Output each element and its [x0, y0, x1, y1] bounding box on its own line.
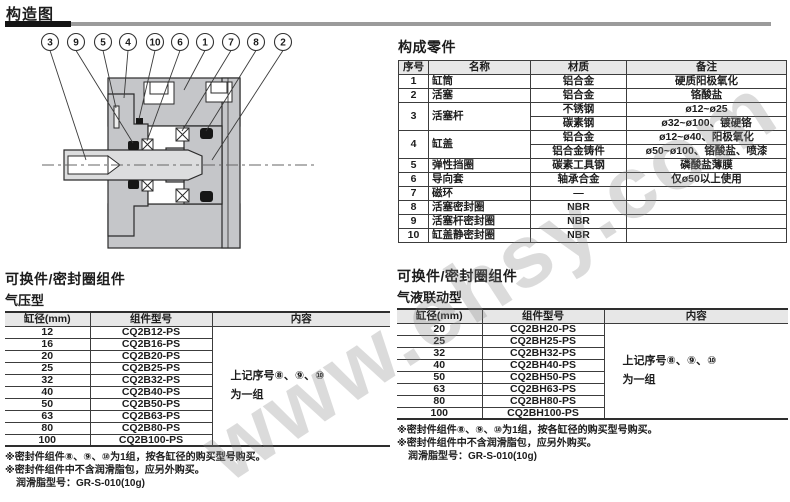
- part-material: NBR: [531, 215, 627, 229]
- kit-part-number: CQ2BH63-PS: [482, 383, 604, 395]
- svg-text:1: 1: [202, 38, 208, 49]
- part-note: [627, 201, 787, 215]
- table-row: 1缸筒铝合金硬质阳极氧化: [399, 75, 787, 89]
- cylinder-cross-section: 39541061782: [16, 28, 380, 266]
- part-no: 6: [399, 173, 429, 187]
- kit-part-number: CQ2B63-PS: [90, 410, 212, 422]
- kit-part-number: CQ2BH20-PS: [482, 323, 604, 335]
- part-no: 4: [399, 131, 429, 159]
- part-name: 磁环: [429, 187, 531, 201]
- kit-subtitle: 气压型: [5, 290, 390, 309]
- kit-note-line: ※密封件组件⑧、⑨、⑩为1组，按各缸径的购买型号购买。: [397, 424, 788, 437]
- bore-size: 100: [397, 407, 482, 419]
- parts-title: 构成零件: [398, 37, 787, 57]
- kit-subtitle: 气液联动型: [397, 287, 788, 306]
- part-material: 铝合金: [531, 75, 627, 89]
- part-no: 3: [399, 103, 429, 131]
- kit-col-header: 组件型号: [482, 309, 604, 323]
- kit-part-number: CQ2BH50-PS: [482, 371, 604, 383]
- part-material: 不锈钢: [531, 103, 627, 117]
- bore-size: 63: [5, 410, 90, 422]
- table-row: 20CQ2BH20-PS上记序号⑧、⑨、⑩为一组: [397, 323, 788, 335]
- kit-content-line: 为一组: [623, 371, 789, 390]
- part-name: 活塞杆密封圈: [429, 215, 531, 229]
- bore-size: 100: [5, 434, 90, 446]
- callout-3: 3: [42, 34, 87, 161]
- rod-seal-top: [128, 141, 139, 150]
- table-row: 8活塞密封圈NBR: [399, 201, 787, 215]
- port-right: [211, 82, 227, 93]
- bore-size: 80: [5, 422, 90, 434]
- bore-size: 40: [397, 359, 482, 371]
- svg-text:3: 3: [47, 38, 53, 49]
- part-note: ø12~ø25: [627, 103, 787, 117]
- part-no: 8: [399, 201, 429, 215]
- part-no: 1: [399, 75, 429, 89]
- component-parts-section: 构成零件 序号名称材质备注1缸筒铝合金硬质阳极氧化2活塞铝合金铬酸盐3活塞杆不锈…: [398, 37, 787, 243]
- kit-part-number: CQ2B32-PS: [90, 374, 212, 386]
- kit-part-number: CQ2BH40-PS: [482, 359, 604, 371]
- table-row: 4缸盖铝合金ø12~ø40、阳极氧化: [399, 131, 787, 145]
- title-rule: [5, 22, 771, 26]
- table-row: 2活塞铝合金铬酸盐: [399, 89, 787, 103]
- component-parts-table: 序号名称材质备注1缸筒铝合金硬质阳极氧化2活塞铝合金铬酸盐3活塞杆不锈钢ø12~…: [398, 60, 787, 243]
- rod-seal-bottom: [128, 180, 139, 189]
- part-name: 缸盖静密封圈: [429, 229, 531, 243]
- part-name: 缸筒: [429, 75, 531, 89]
- part-material: NBR: [531, 201, 627, 215]
- parts-col-header: 备注: [627, 61, 787, 75]
- structure-diagram: 39541061782: [16, 28, 380, 266]
- part-material: 铝合金铸件: [531, 145, 627, 159]
- kit-note-line: ※密封件组件中不含润滑脂包，应另外购买。: [397, 437, 788, 450]
- bore-size: 50: [397, 371, 482, 383]
- kit-content: 上记序号⑧、⑨、⑩为一组: [604, 323, 788, 419]
- bore-size: 16: [5, 338, 90, 350]
- part-note: ø50~ø100、铬酸盐、喷漆: [627, 145, 787, 159]
- part-note: [627, 187, 787, 201]
- table-row: 10缸盖静密封圈NBR: [399, 229, 787, 243]
- kit-part-number: CQ2B20-PS: [90, 350, 212, 362]
- part-name: 活塞杆: [429, 103, 531, 131]
- part-name: 活塞密封圈: [429, 201, 531, 215]
- bore-size: 40: [5, 386, 90, 398]
- part-note: ø12~ø40、阳极氧化: [627, 131, 787, 145]
- part-name: 活塞: [429, 89, 531, 103]
- bore-size: 12: [5, 326, 90, 338]
- kit-title: 可换件/密封圈组件: [5, 269, 390, 289]
- part-material: 铝合金: [531, 131, 627, 145]
- bore-size: 20: [5, 350, 90, 362]
- part-name: 弹性挡圈: [429, 159, 531, 173]
- bore-size: 25: [397, 335, 482, 347]
- parts-col-header: 序号: [399, 61, 429, 75]
- part-note: [627, 229, 787, 243]
- part-no: 7: [399, 187, 429, 201]
- kit-part-number: CQ2B16-PS: [90, 338, 212, 350]
- tube-gasket: [136, 118, 143, 124]
- kit-col-header: 内容: [212, 312, 390, 326]
- bore-size: 63: [397, 383, 482, 395]
- part-material: NBR: [531, 229, 627, 243]
- kit-part-number: CQ2B25-PS: [90, 362, 212, 374]
- table-row: 5弹性挡圈碳素工具钢磷酸盐薄膜: [399, 159, 787, 173]
- kit-part-number: CQ2BH80-PS: [482, 395, 604, 407]
- part-name: 导向套: [429, 173, 531, 187]
- kit-part-number: CQ2B50-PS: [90, 398, 212, 410]
- piston-seal-bottom: [200, 191, 213, 202]
- kit-col-header: 内容: [604, 309, 788, 323]
- kit-title: 可换件/密封圈组件: [397, 266, 788, 286]
- part-name: 缸盖: [429, 131, 531, 159]
- kit-col-header: 组件型号: [90, 312, 212, 326]
- part-note: ø32~ø100、镀硬铬: [627, 117, 787, 131]
- svg-text:9: 9: [73, 38, 79, 49]
- seal-kit-table-air-hydro: 缸径(mm)组件型号内容20CQ2BH20-PS上记序号⑧、⑨、⑩为一组25CQ…: [397, 308, 788, 420]
- part-material: 碳素工具钢: [531, 159, 627, 173]
- svg-text:5: 5: [100, 38, 106, 49]
- kit-part-number: CQ2B100-PS: [90, 434, 212, 446]
- kit-notes-pneumatic: ※密封件组件⑧、⑨、⑩为1组，按各缸径的购买型号购买。※密封件组件中不含润滑脂包…: [5, 451, 390, 490]
- seal-kit-pneumatic: 可换件/密封圈组件 气压型 缸径(mm)组件型号内容12CQ2B12-PS上记序…: [5, 269, 390, 490]
- bore-size: 20: [397, 323, 482, 335]
- part-material: 轴承合金: [531, 173, 627, 187]
- seal-kit-air-hydro: 可换件/密封圈组件 气液联动型 缸径(mm)组件型号内容20CQ2BH20-PS…: [397, 266, 788, 463]
- part-note: [627, 215, 787, 229]
- kit-part-number: CQ2BH25-PS: [482, 335, 604, 347]
- parts-col-header: 材质: [531, 61, 627, 75]
- kit-col-header: 缸径(mm): [397, 309, 482, 323]
- svg-text:7: 7: [228, 38, 234, 49]
- parts-col-header: 名称: [429, 61, 531, 75]
- part-no: 9: [399, 215, 429, 229]
- svg-text:10: 10: [149, 38, 161, 49]
- part-note: 铬酸盐: [627, 89, 787, 103]
- bore-size: 25: [5, 362, 90, 374]
- kit-content-line: 为一组: [231, 386, 391, 405]
- svg-text:4: 4: [125, 38, 131, 49]
- port-left: [150, 82, 168, 94]
- kit-content-line: 上记序号⑧、⑨、⑩: [623, 352, 789, 371]
- part-no: 10: [399, 229, 429, 243]
- part-material: —: [531, 187, 627, 201]
- kit-col-header: 缸径(mm): [5, 312, 90, 326]
- bore-size: 32: [397, 347, 482, 359]
- kit-part-number: CQ2BH32-PS: [482, 347, 604, 359]
- table-row: 3活塞杆不锈钢ø12~ø25: [399, 103, 787, 117]
- kit-notes-air-hydro: ※密封件组件⑧、⑨、⑩为1组，按各缸径的购买型号购买。※密封件组件中不含润滑脂包…: [397, 424, 788, 463]
- kit-content-line: 上记序号⑧、⑨、⑩: [231, 367, 391, 386]
- bore-size: 80: [397, 395, 482, 407]
- kit-note-line: 润滑脂型号：GR-S-010(10g): [5, 477, 390, 490]
- kit-note-line: ※密封件组件⑧、⑨、⑩为1组，按各缸径的购买型号购买。: [5, 451, 390, 464]
- part-material: 铝合金: [531, 89, 627, 103]
- part-note: 硬质阳极氧化: [627, 75, 787, 89]
- kit-content: 上记序号⑧、⑨、⑩为一组: [212, 326, 390, 446]
- table-row: 12CQ2B12-PS上记序号⑧、⑨、⑩为一组: [5, 326, 390, 338]
- kit-note-line: ※密封件组件中不含润滑脂包，应另外购买。: [5, 464, 390, 477]
- kit-note-line: 润滑脂型号：GR-S-010(10g): [397, 450, 788, 463]
- table-row: 9活塞杆密封圈NBR: [399, 215, 787, 229]
- part-no: 5: [399, 159, 429, 173]
- kit-part-number: CQ2B40-PS: [90, 386, 212, 398]
- part-note: 磷酸盐薄膜: [627, 159, 787, 173]
- bore-size: 50: [5, 398, 90, 410]
- cylinder-end-plate: [222, 78, 240, 248]
- part-note: 仅ø50以上使用: [627, 173, 787, 187]
- svg-text:6: 6: [177, 38, 183, 49]
- part-material: 碳素钢: [531, 117, 627, 131]
- kit-part-number: CQ2B80-PS: [90, 422, 212, 434]
- seal-kit-table-pneumatic: 缸径(mm)组件型号内容12CQ2B12-PS上记序号⑧、⑨、⑩为一组16CQ2…: [5, 311, 390, 447]
- table-row: 7磁环—: [399, 187, 787, 201]
- part-no: 2: [399, 89, 429, 103]
- kit-part-number: CQ2B12-PS: [90, 326, 212, 338]
- svg-text:8: 8: [253, 38, 259, 49]
- table-row: 6导向套轴承合金仅ø50以上使用: [399, 173, 787, 187]
- svg-text:2: 2: [280, 38, 286, 49]
- bore-size: 32: [5, 374, 90, 386]
- kit-part-number: CQ2BH100-PS: [482, 407, 604, 419]
